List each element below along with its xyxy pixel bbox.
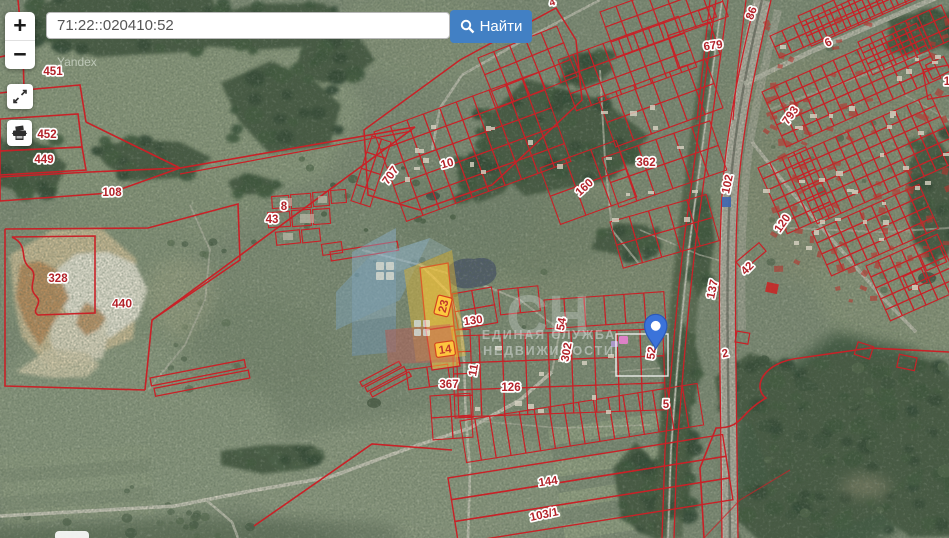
svg-text:362: 362 xyxy=(636,157,655,169)
svg-text:8: 8 xyxy=(281,201,288,213)
svg-text:126: 126 xyxy=(501,382,520,394)
svg-text:43: 43 xyxy=(266,214,279,226)
svg-text:108: 108 xyxy=(102,187,122,199)
svg-text:367: 367 xyxy=(439,379,458,391)
svg-text:1: 1 xyxy=(944,76,949,88)
svg-text:452: 452 xyxy=(37,129,56,141)
svg-text:НЕДВИЖИМОСТИ: НЕДВИЖИМОСТИ xyxy=(483,344,615,358)
svg-text:14: 14 xyxy=(438,343,453,357)
svg-text:449: 449 xyxy=(34,154,53,166)
svg-text:328: 328 xyxy=(48,273,68,285)
svg-text:440: 440 xyxy=(112,296,132,310)
svg-text:5: 5 xyxy=(663,399,670,411)
svg-text:ЕДИНАЯ СЛУЖБА: ЕДИНАЯ СЛУЖБА xyxy=(482,328,616,342)
